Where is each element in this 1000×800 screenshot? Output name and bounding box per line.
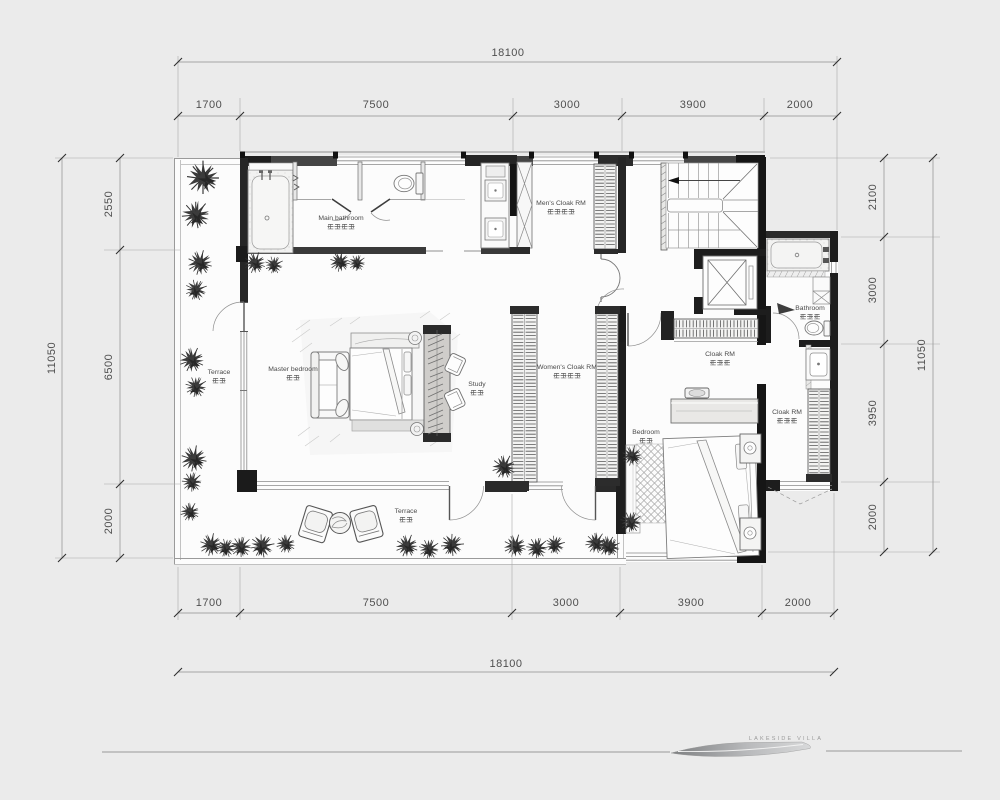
svg-text:3950: 3950 xyxy=(867,400,879,426)
svg-text:1700: 1700 xyxy=(196,597,222,609)
svg-text:3900: 3900 xyxy=(678,597,704,609)
svg-text:18100: 18100 xyxy=(489,658,522,670)
svg-text:2000: 2000 xyxy=(785,597,811,609)
svg-text:Bedroom: Bedroom xyxy=(632,429,660,436)
svg-text:11050: 11050 xyxy=(46,342,58,374)
svg-text:Study: Study xyxy=(468,381,486,388)
svg-text:Main bathroom: Main bathroom xyxy=(318,215,364,222)
svg-text:3000: 3000 xyxy=(867,277,879,303)
svg-text:3000: 3000 xyxy=(553,597,579,609)
svg-text:7500: 7500 xyxy=(363,99,389,111)
svg-text:2000: 2000 xyxy=(103,508,115,534)
svg-text:18100: 18100 xyxy=(491,47,524,59)
svg-text:6500: 6500 xyxy=(103,354,115,380)
svg-text:Master bedroom: Master bedroom xyxy=(268,366,318,373)
svg-text:2550: 2550 xyxy=(103,191,115,217)
svg-text:3000: 3000 xyxy=(554,99,580,111)
svg-text:2100: 2100 xyxy=(867,184,879,210)
svg-text:Cloak RM: Cloak RM xyxy=(772,409,802,416)
svg-text:11050: 11050 xyxy=(916,339,928,371)
svg-text:Cloak RM: Cloak RM xyxy=(705,351,735,358)
svg-text:1700: 1700 xyxy=(196,99,222,111)
svg-text:LAKESIDE VILLA: LAKESIDE VILLA xyxy=(749,736,823,742)
svg-text:3900: 3900 xyxy=(680,99,706,111)
svg-text:Bathroom: Bathroom xyxy=(795,305,825,312)
svg-text:7500: 7500 xyxy=(363,597,389,609)
svg-text:Women's Cloak RM: Women's Cloak RM xyxy=(537,364,597,371)
svg-text:Terrace: Terrace xyxy=(395,508,418,515)
svg-text:Men's Cloak RM: Men's Cloak RM xyxy=(536,200,586,207)
svg-text:2000: 2000 xyxy=(867,504,879,530)
svg-text:Terrace: Terrace xyxy=(208,369,231,376)
svg-text:2000: 2000 xyxy=(787,99,813,111)
